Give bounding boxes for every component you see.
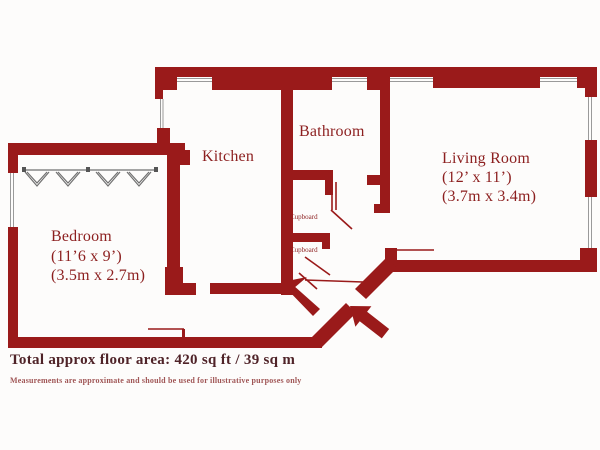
walls-layer [8, 67, 597, 348]
kitchen-west-window [161, 99, 164, 128]
bedroom-name: Bedroom [51, 228, 112, 245]
room-label-living-room: Living Room(12’ x 11’)(3.7m x 3.4m) [442, 149, 536, 206]
bedroom-dims-metric: (3.5m x 2.7m) [51, 266, 145, 286]
living-room-side-window-lower [589, 197, 592, 248]
cupboard-top-door-swing [331, 210, 352, 229]
label-cupboard-bottom: Cupboard [290, 246, 318, 254]
living-room-side-window-upper [589, 97, 592, 140]
kitchen-top-window [177, 79, 212, 82]
bathroom-top-window [332, 79, 367, 82]
hallway-door-swing [305, 280, 363, 282]
bedroom-door-swing [148, 329, 185, 337]
room-label-kitchen: Kitchen [202, 147, 254, 166]
wardrobe-icon [22, 167, 158, 186]
cupboard-bottom-door-swing [305, 257, 330, 275]
label-cupboard-top: Cupboard [290, 213, 318, 221]
living-room-top-window-right [540, 79, 577, 82]
room-label-bathroom: Bathroom [299, 122, 365, 141]
entrance-arrow-icon [342, 296, 393, 344]
living-room-dims-imperial: (12’ x 11’) [442, 168, 536, 187]
bedroom-side-window [11, 173, 14, 227]
bedroom-dims-imperial: (11’6 x 9’) [51, 247, 145, 267]
footer-total-area: Total approx floor area: 420 sq ft / 39 … [10, 352, 590, 369]
living-room-top-window-left [390, 79, 433, 82]
bathroom-door-swing [332, 182, 336, 210]
living-room-name: Living Room [442, 150, 530, 167]
living-room-dims-metric: (3.7m x 3.4m) [442, 187, 536, 206]
floorplan-canvas: Kitchen Bathroom Living Room(12’ x 11’)(… [0, 0, 600, 450]
room-label-bedroom: Bedroom(11’6 x 9’)(3.5m x 2.7m) [51, 227, 145, 286]
footer-disclaimer: Measurements are approximate and should … [10, 376, 590, 385]
